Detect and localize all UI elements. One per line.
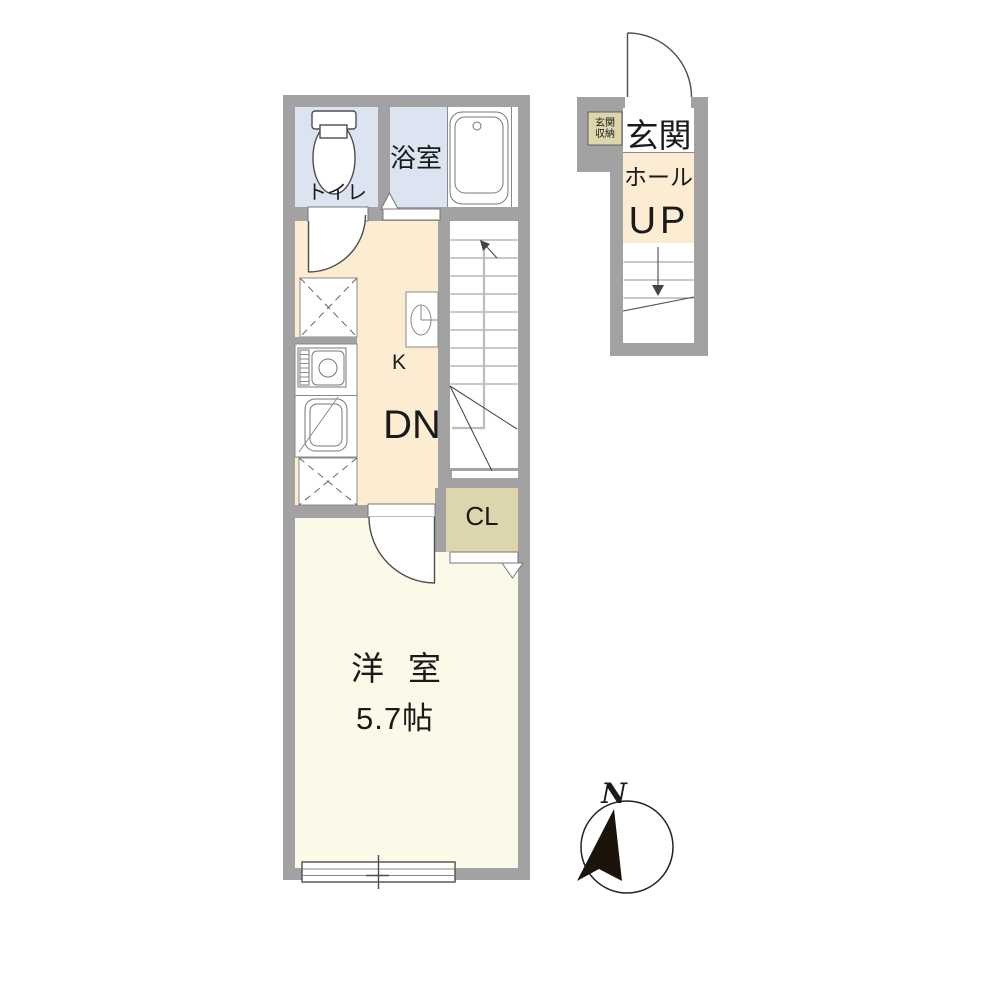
sink-icon (299, 397, 347, 452)
hall-label: ホール (623, 158, 694, 192)
bath-room-label: 浴室 (383, 138, 449, 175)
wall-top (283, 95, 530, 107)
wall-bedroom-top (295, 505, 368, 518)
wall-closet-left (435, 488, 446, 552)
water-unit-icon (406, 292, 438, 347)
floor-plan-canvas: トイレ 浴室 K DN CL 洋室 5.7帖 玄関 収納 玄関 ホール UP N (0, 0, 1000, 1000)
entrance-door (625, 33, 692, 108)
entrance-unit (577, 33, 708, 356)
kitchen-counter (295, 344, 357, 457)
stair-landing-strip (452, 471, 518, 478)
compass-north-label: N (594, 777, 634, 810)
stove-icon (298, 348, 346, 387)
wall-counter-stub (295, 337, 357, 344)
closet-label: CL (446, 501, 518, 532)
refrigerator-space-icon (300, 278, 357, 337)
western-room-size: 5.7帖 (356, 693, 434, 738)
toilet-room-label: トイレ (295, 176, 379, 205)
entrance-storage-label-line1: 玄関 (595, 118, 615, 129)
wall-left (283, 95, 295, 880)
washer-space-icon (299, 458, 357, 505)
compass (577, 801, 673, 893)
entrance-storage-label: 玄関 収納 (588, 112, 622, 145)
western-room-label: 洋室 (351, 642, 465, 690)
bathtub-icon (450, 112, 508, 204)
kitchen-label: K (392, 351, 406, 375)
stairs-down-label: DN (368, 403, 456, 448)
entrance-label: 玄関 (623, 109, 694, 157)
floor-plan-drawing (0, 0, 1000, 1000)
wall-right (518, 95, 530, 880)
entrance-storage-label-line2: 収納 (595, 129, 615, 140)
stairs-up-label: UP (623, 200, 695, 243)
main-unit (283, 95, 530, 889)
